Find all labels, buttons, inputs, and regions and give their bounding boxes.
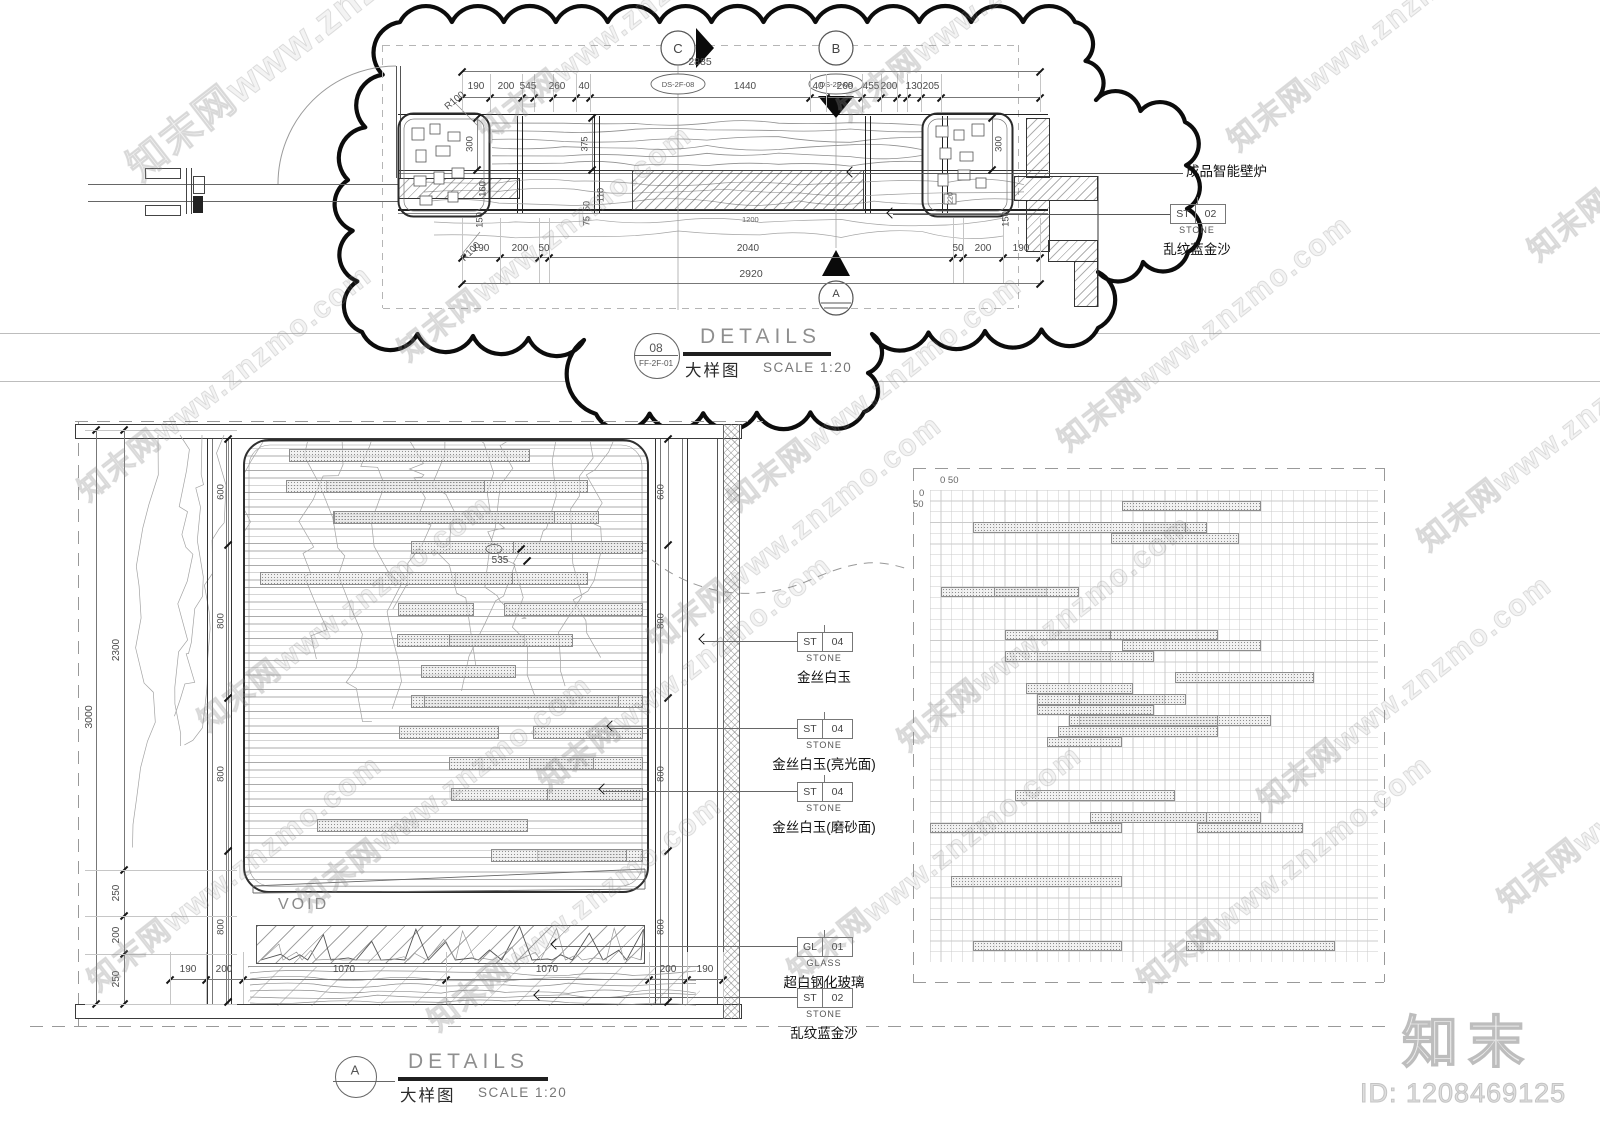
tile-strip	[1047, 737, 1122, 748]
dim-line	[477, 118, 478, 170]
tag-type: STONE	[806, 653, 842, 663]
tile-strip	[1197, 823, 1304, 834]
dim-line	[1003, 218, 1004, 284]
tag-stem	[824, 775, 825, 782]
dim-line	[85, 870, 237, 871]
tile-strip	[994, 587, 1079, 598]
tag-code: ST	[798, 783, 823, 801]
dim-label: 2040	[737, 244, 759, 254]
dim-line	[124, 430, 125, 1004]
dim-line	[921, 74, 922, 112]
leader-line	[611, 728, 797, 729]
dim-label: 800	[656, 766, 666, 782]
dim-label: 150	[475, 212, 485, 228]
tile-strip	[1122, 501, 1261, 512]
grid-boundary	[913, 468, 914, 982]
material-tag-box: ST02	[797, 988, 853, 1008]
dim-label: 800	[216, 613, 226, 629]
dim-label: 2920	[739, 269, 762, 280]
dim-line	[826, 74, 827, 112]
tile-strip	[1058, 726, 1218, 737]
dim-line	[907, 74, 908, 112]
fireplace-glass-elev	[256, 925, 645, 964]
dim-label: 600	[216, 484, 226, 500]
dim-label: 2300	[112, 639, 122, 661]
dim-label: 200	[660, 965, 677, 975]
dim-label: 250	[112, 885, 122, 902]
tile-strip	[1069, 715, 1218, 726]
dim-label: 800	[216, 766, 226, 782]
leader-line	[603, 791, 797, 792]
dim-line	[462, 97, 1040, 98]
dim-line	[490, 74, 491, 112]
dim-label: 800	[656, 613, 666, 629]
material-tag-box: GL01	[797, 937, 853, 957]
tag-stem	[824, 930, 825, 937]
dim-label: 1070	[536, 965, 558, 975]
dim-label: 190	[1013, 244, 1030, 254]
dim-label: 200	[112, 927, 122, 944]
title-underline	[398, 1077, 548, 1081]
tag-name: 金丝白玉(亮光面)	[772, 753, 876, 773]
dim-label: 800	[656, 919, 666, 935]
dim-label: 300	[465, 136, 475, 152]
grid-boundary	[1384, 468, 1385, 982]
dim-label: 50	[952, 244, 963, 254]
dim-line	[810, 74, 811, 112]
tag-num: 04	[823, 783, 852, 801]
tag-name: 金丝白玉(磨砂面)	[772, 816, 876, 836]
dim-label: 455	[863, 82, 880, 92]
dim-label: 1440	[734, 82, 756, 92]
dim-line	[446, 952, 447, 1004]
dim-label: 40	[578, 82, 589, 92]
dim-label: 110	[597, 188, 606, 202]
dim-label: 160	[478, 181, 488, 197]
dim-label: 260	[549, 82, 566, 92]
dim-label: 200	[498, 82, 515, 92]
leader-line	[703, 641, 797, 642]
tag-num: 01	[823, 938, 852, 956]
tag-name: 金丝白玉	[797, 666, 851, 686]
dim-line	[534, 74, 535, 112]
dim-label: 2885	[688, 57, 711, 68]
dim-line	[85, 1004, 237, 1005]
tag-stem	[824, 981, 825, 988]
dim-label: 535	[492, 556, 509, 566]
image-id: ID: 1208469125	[1360, 1078, 1566, 1109]
grid-axis-left-b: 50	[913, 500, 924, 510]
dim-line	[206, 952, 207, 1004]
tile-strip	[1015, 790, 1175, 801]
dim-line	[462, 71, 1040, 72]
tile-strip	[930, 823, 1122, 834]
dim-label: 75	[583, 216, 592, 226]
tile-strip	[1037, 705, 1154, 716]
tag-code: GL	[798, 938, 823, 956]
tag-stem	[824, 625, 825, 632]
dim-label: 50	[583, 201, 592, 211]
dim-line	[522, 74, 523, 112]
tile-strip	[1005, 630, 1112, 641]
void-label: VOID	[278, 897, 329, 913]
dim-line	[243, 952, 244, 1004]
tag-stem	[824, 712, 825, 719]
dim-label: 200	[216, 965, 233, 975]
material-tag-box: ST04	[797, 632, 853, 652]
dim-label: 40	[812, 82, 823, 92]
material-tag-box: ST04	[797, 719, 853, 739]
tile-strip	[1005, 651, 1154, 662]
tag-name: 乱纹蓝金沙	[790, 1022, 858, 1042]
dim-label: 600	[656, 484, 666, 500]
cad-drawing-sheet: C DS-2F-08 B DS-2F-08 A	[0, 0, 1600, 1132]
dim-label: 250	[112, 971, 122, 988]
stone-base-band	[248, 966, 700, 1006]
dim-label: 200	[881, 82, 898, 92]
dim-label: 375	[581, 136, 590, 151]
dim-label: 190	[468, 82, 485, 92]
dim-label: 300	[994, 136, 1004, 152]
tag-code: ST	[798, 633, 823, 651]
site-logo: 知末	[1402, 998, 1534, 1079]
dim-label: 190	[180, 965, 197, 975]
tag-num: 04	[823, 633, 852, 651]
dim-line	[170, 952, 171, 1004]
dim-line	[668, 439, 669, 1004]
tile-grid	[930, 490, 1378, 962]
dim-label: 545	[520, 82, 537, 92]
dim-line	[576, 74, 577, 112]
dim-label: 190	[697, 965, 714, 975]
dim-line	[85, 954, 237, 955]
tile-strip	[951, 876, 1122, 887]
dim-label: 130	[906, 82, 923, 92]
grid-axis-left-a: 0	[919, 489, 924, 499]
dim-label: 200	[975, 244, 992, 254]
tile-strip	[1026, 683, 1133, 694]
tag-num: 02	[823, 989, 852, 1007]
dim-label: 800	[216, 919, 226, 935]
dim-line	[228, 439, 229, 1004]
dim-line	[687, 952, 688, 1004]
dim-line	[881, 74, 882, 112]
dim-line	[1040, 74, 1041, 112]
dim-line	[553, 74, 554, 112]
dim-label: 200	[512, 244, 529, 254]
dim-line	[500, 218, 501, 284]
tile-strip	[1079, 694, 1186, 705]
dim-label: 205	[923, 82, 940, 92]
dim-line	[897, 74, 898, 112]
tile-strip	[1122, 640, 1261, 651]
grid-axis-top: 0 50	[940, 476, 959, 486]
tile-strip	[1111, 533, 1239, 544]
dim-line	[85, 430, 237, 431]
dim-label: 260	[837, 82, 854, 92]
tag-num: 04	[823, 720, 852, 738]
tag-type: STONE	[806, 740, 842, 750]
dim-line	[649, 952, 650, 1004]
dim-label: 220	[948, 192, 955, 204]
detail-title: DETAILS	[408, 1050, 529, 1074]
detail-letter: A	[351, 1064, 360, 1077]
tile-strip	[1186, 941, 1335, 952]
tag-code: ST	[798, 720, 823, 738]
dim-line	[590, 74, 591, 112]
tile-strip	[1175, 672, 1314, 683]
detail-scale: SCALE 1:20	[478, 1085, 567, 1100]
tile-strip	[973, 522, 1186, 533]
dim-line	[941, 74, 942, 112]
tag-code: ST	[798, 989, 823, 1007]
dim-line	[592, 118, 593, 170]
dim-line	[723, 952, 724, 1004]
tile-strip	[1090, 812, 1207, 823]
tag-type: STONE	[806, 1009, 842, 1019]
dim-line	[862, 74, 863, 112]
dim-line	[462, 283, 1040, 284]
dim-label: 1070	[333, 965, 355, 975]
dim-line	[96, 430, 97, 1004]
dim-label: 150	[1001, 211, 1011, 227]
grid-boundary	[913, 982, 1384, 983]
leader-line	[555, 946, 797, 947]
tag-type: GLASS	[806, 958, 841, 968]
dim-label: 50	[538, 244, 549, 254]
tile-strip	[973, 941, 1122, 952]
grid-boundary	[913, 468, 1384, 469]
dim-line	[1040, 218, 1041, 284]
tag-type: STONE	[806, 803, 842, 813]
detail-title-cn: 大样图	[400, 1082, 456, 1106]
dim-label: 3000	[84, 705, 95, 728]
material-tag-box: ST04	[797, 782, 853, 802]
dim-line	[85, 916, 237, 917]
